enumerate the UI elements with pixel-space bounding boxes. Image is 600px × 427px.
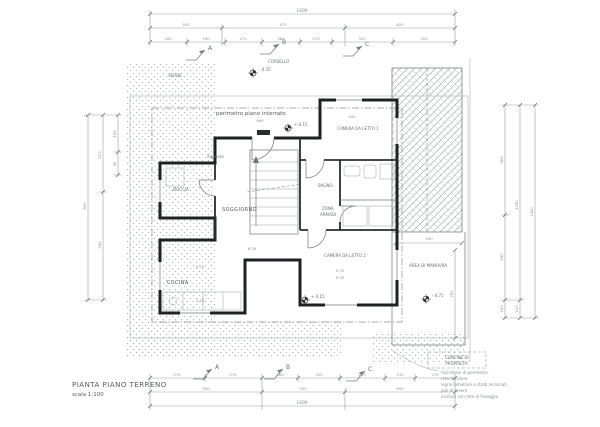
dim-bottom-fine-1: 275 bbox=[229, 372, 237, 377]
dim-top-total: 1600 bbox=[296, 8, 307, 14]
elevation-marker-ingresso-icon bbox=[283, 123, 293, 133]
confine-label-2: PROPRIETA' bbox=[445, 361, 468, 366]
dim-top-fine-4: 170 bbox=[312, 36, 320, 41]
elevation-marker-corsello-icon bbox=[248, 68, 258, 78]
manovra-outline bbox=[392, 232, 465, 345]
section-c-bottom: C bbox=[368, 366, 372, 373]
dim-right-mid-1: 110 bbox=[514, 305, 519, 313]
elevation-corsello: - 0.35 bbox=[259, 67, 271, 72]
room-label-bagno: BAGNO bbox=[318, 183, 333, 188]
room-label-cucina: CUCINA bbox=[167, 280, 189, 286]
dim-top-mid-2: 620 bbox=[396, 22, 404, 27]
dim-bottom-fine-6: 275 bbox=[431, 372, 439, 377]
corsello-area: CORSELLO - 0.35 bbox=[248, 59, 289, 78]
door-camera2 bbox=[308, 230, 326, 248]
dim-top-fine-0: 185 bbox=[164, 36, 172, 41]
dim-bottom-mid-1: 400 bbox=[299, 386, 307, 391]
confine-label-1: CONFINE DI bbox=[445, 355, 468, 360]
section-a-top: A bbox=[208, 45, 213, 52]
note-line-1: recinzione di perimetro: bbox=[441, 370, 489, 375]
section-c-top: C bbox=[365, 41, 369, 48]
dim-chain-top: 1600 500 475 620 185 190 170 380 170 310… bbox=[148, 8, 457, 46]
dim-top-fine-1: 190 bbox=[202, 36, 210, 41]
entrance-canopy bbox=[257, 130, 270, 135]
dim-bottom-total: 1600 bbox=[296, 400, 307, 406]
staircase bbox=[247, 150, 301, 234]
elevation-marker-manovra-icon bbox=[421, 294, 431, 304]
bagno-wc bbox=[364, 165, 376, 178]
dim-camera2-w2: 5.05 bbox=[336, 275, 345, 280]
dim-top-fine-6: 310 bbox=[420, 36, 428, 41]
dim-top-a: 965 bbox=[256, 118, 264, 123]
dim-left-fine-1: 80 bbox=[112, 161, 117, 166]
section-a-bottom: A bbox=[215, 364, 220, 371]
room-label-corsello: CORSELLO bbox=[268, 59, 289, 64]
elevation-manovra: - 0.75 bbox=[432, 293, 444, 298]
interior-walls bbox=[215, 138, 397, 240]
dim-bottom-mid-2: 650 bbox=[396, 386, 404, 391]
dim-left-outer: 800 bbox=[82, 202, 87, 210]
manovra-dim-h: 760 bbox=[449, 290, 454, 298]
dim-right-inner-1: 690 bbox=[499, 253, 504, 261]
dim-cucina-w: 4.70 bbox=[196, 264, 205, 269]
adjacent-building bbox=[392, 68, 462, 232]
room-label-manovra: AREA DI MANOVRA bbox=[409, 263, 447, 268]
area-manovra: AREA DI MANOVRA 540 760 - 0.75 bbox=[392, 232, 465, 345]
room-label-camera2: CAMERA DA LETTO 2 bbox=[324, 253, 366, 258]
room-label-doccia: DOCCIA bbox=[173, 187, 189, 192]
section-flag-a-top-icon bbox=[186, 50, 205, 60]
manovra-dim-w: 540 bbox=[425, 236, 433, 241]
room-label-soggiorno: SOGGIORNO bbox=[222, 207, 257, 213]
note-line-5: incrocci con rete di fissaggio bbox=[441, 394, 499, 399]
green-area-bottom bbox=[125, 320, 343, 358]
door-camera1 bbox=[306, 160, 324, 178]
dim-soggiorno: 6.78 bbox=[248, 246, 257, 251]
dim-chain-left: 800 370 595 165 80 bbox=[82, 113, 122, 302]
stair-break-line bbox=[247, 184, 301, 192]
dim-right-outer: 1400 bbox=[529, 207, 534, 217]
basement-perimeter-label: perimetro piano interrato bbox=[216, 111, 286, 117]
elevation-camera2: + 0.15 bbox=[311, 294, 325, 299]
dim-top-mid-1: 475 bbox=[279, 22, 287, 27]
elevation-ingresso: + 0.15 bbox=[294, 122, 308, 127]
drawing-title: PIANTA PIANO TERRENO bbox=[72, 381, 167, 389]
dim-left-mid-0: 370 bbox=[97, 151, 102, 159]
bagno-sink bbox=[344, 166, 360, 176]
dim-bottom-mid-0: 550 bbox=[202, 386, 210, 391]
dim-chain-right: 565 690 160 1250 110 1400 bbox=[499, 103, 539, 320]
dim-right-mid-0: 1250 bbox=[514, 200, 519, 210]
room-label-ingresso: ingresso bbox=[207, 154, 224, 159]
title-block: PIANTA PIANO TERRENO scala 1:100 bbox=[72, 381, 167, 398]
section-b-top: B bbox=[282, 39, 286, 46]
wardrobe-2 bbox=[369, 206, 393, 226]
dim-bottom-fine-5: 140 bbox=[396, 372, 404, 377]
dim-left-fine-0: 165 bbox=[112, 130, 117, 138]
note-line-3: legno lamellare a strati incrociati bbox=[441, 382, 507, 387]
room-label-armadi-1: ZONA bbox=[322, 206, 334, 211]
doors bbox=[199, 135, 356, 248]
dim-top-fine-2: 170 bbox=[239, 36, 247, 41]
dim-right-inner-2: 160 bbox=[499, 305, 504, 313]
door-entrance bbox=[252, 138, 274, 160]
room-label-armadi-2: ARMADI bbox=[320, 212, 336, 217]
section-flag-c-top-icon bbox=[343, 46, 362, 56]
dim-cucina-h: 3.16 bbox=[196, 298, 205, 303]
dim-left-mid-1: 595 bbox=[97, 241, 102, 249]
section-flag-a-bottom-icon bbox=[193, 369, 212, 379]
floor-plan-page: VERDE perimetro piano interrato CORSELLO… bbox=[0, 0, 600, 427]
dim-top-b: 940 bbox=[348, 114, 356, 119]
section-b-bottom: B bbox=[286, 364, 290, 371]
dim-chain-bottom: 275 275 180 205 235 140 275 550 400 650 … bbox=[148, 372, 457, 410]
dim-top-mid-0: 500 bbox=[182, 22, 190, 27]
room-label-verde: VERDE bbox=[168, 73, 182, 78]
drawing-scale: scala 1:100 bbox=[72, 392, 104, 398]
dim-right-inner-0: 565 bbox=[499, 156, 504, 164]
dim-camera2-w: 5.70 bbox=[336, 268, 345, 273]
dim-bottom-fine-0: 275 bbox=[173, 372, 181, 377]
floor-plan-canvas: VERDE perimetro piano interrato CORSELLO… bbox=[0, 0, 600, 427]
section-flag-b-top-icon bbox=[260, 44, 279, 54]
stair-treads bbox=[250, 162, 298, 225]
room-label-camera1: CAMERA DA LETTO 1 bbox=[337, 126, 379, 131]
dim-bottom-fine-3: 205 bbox=[315, 372, 323, 377]
